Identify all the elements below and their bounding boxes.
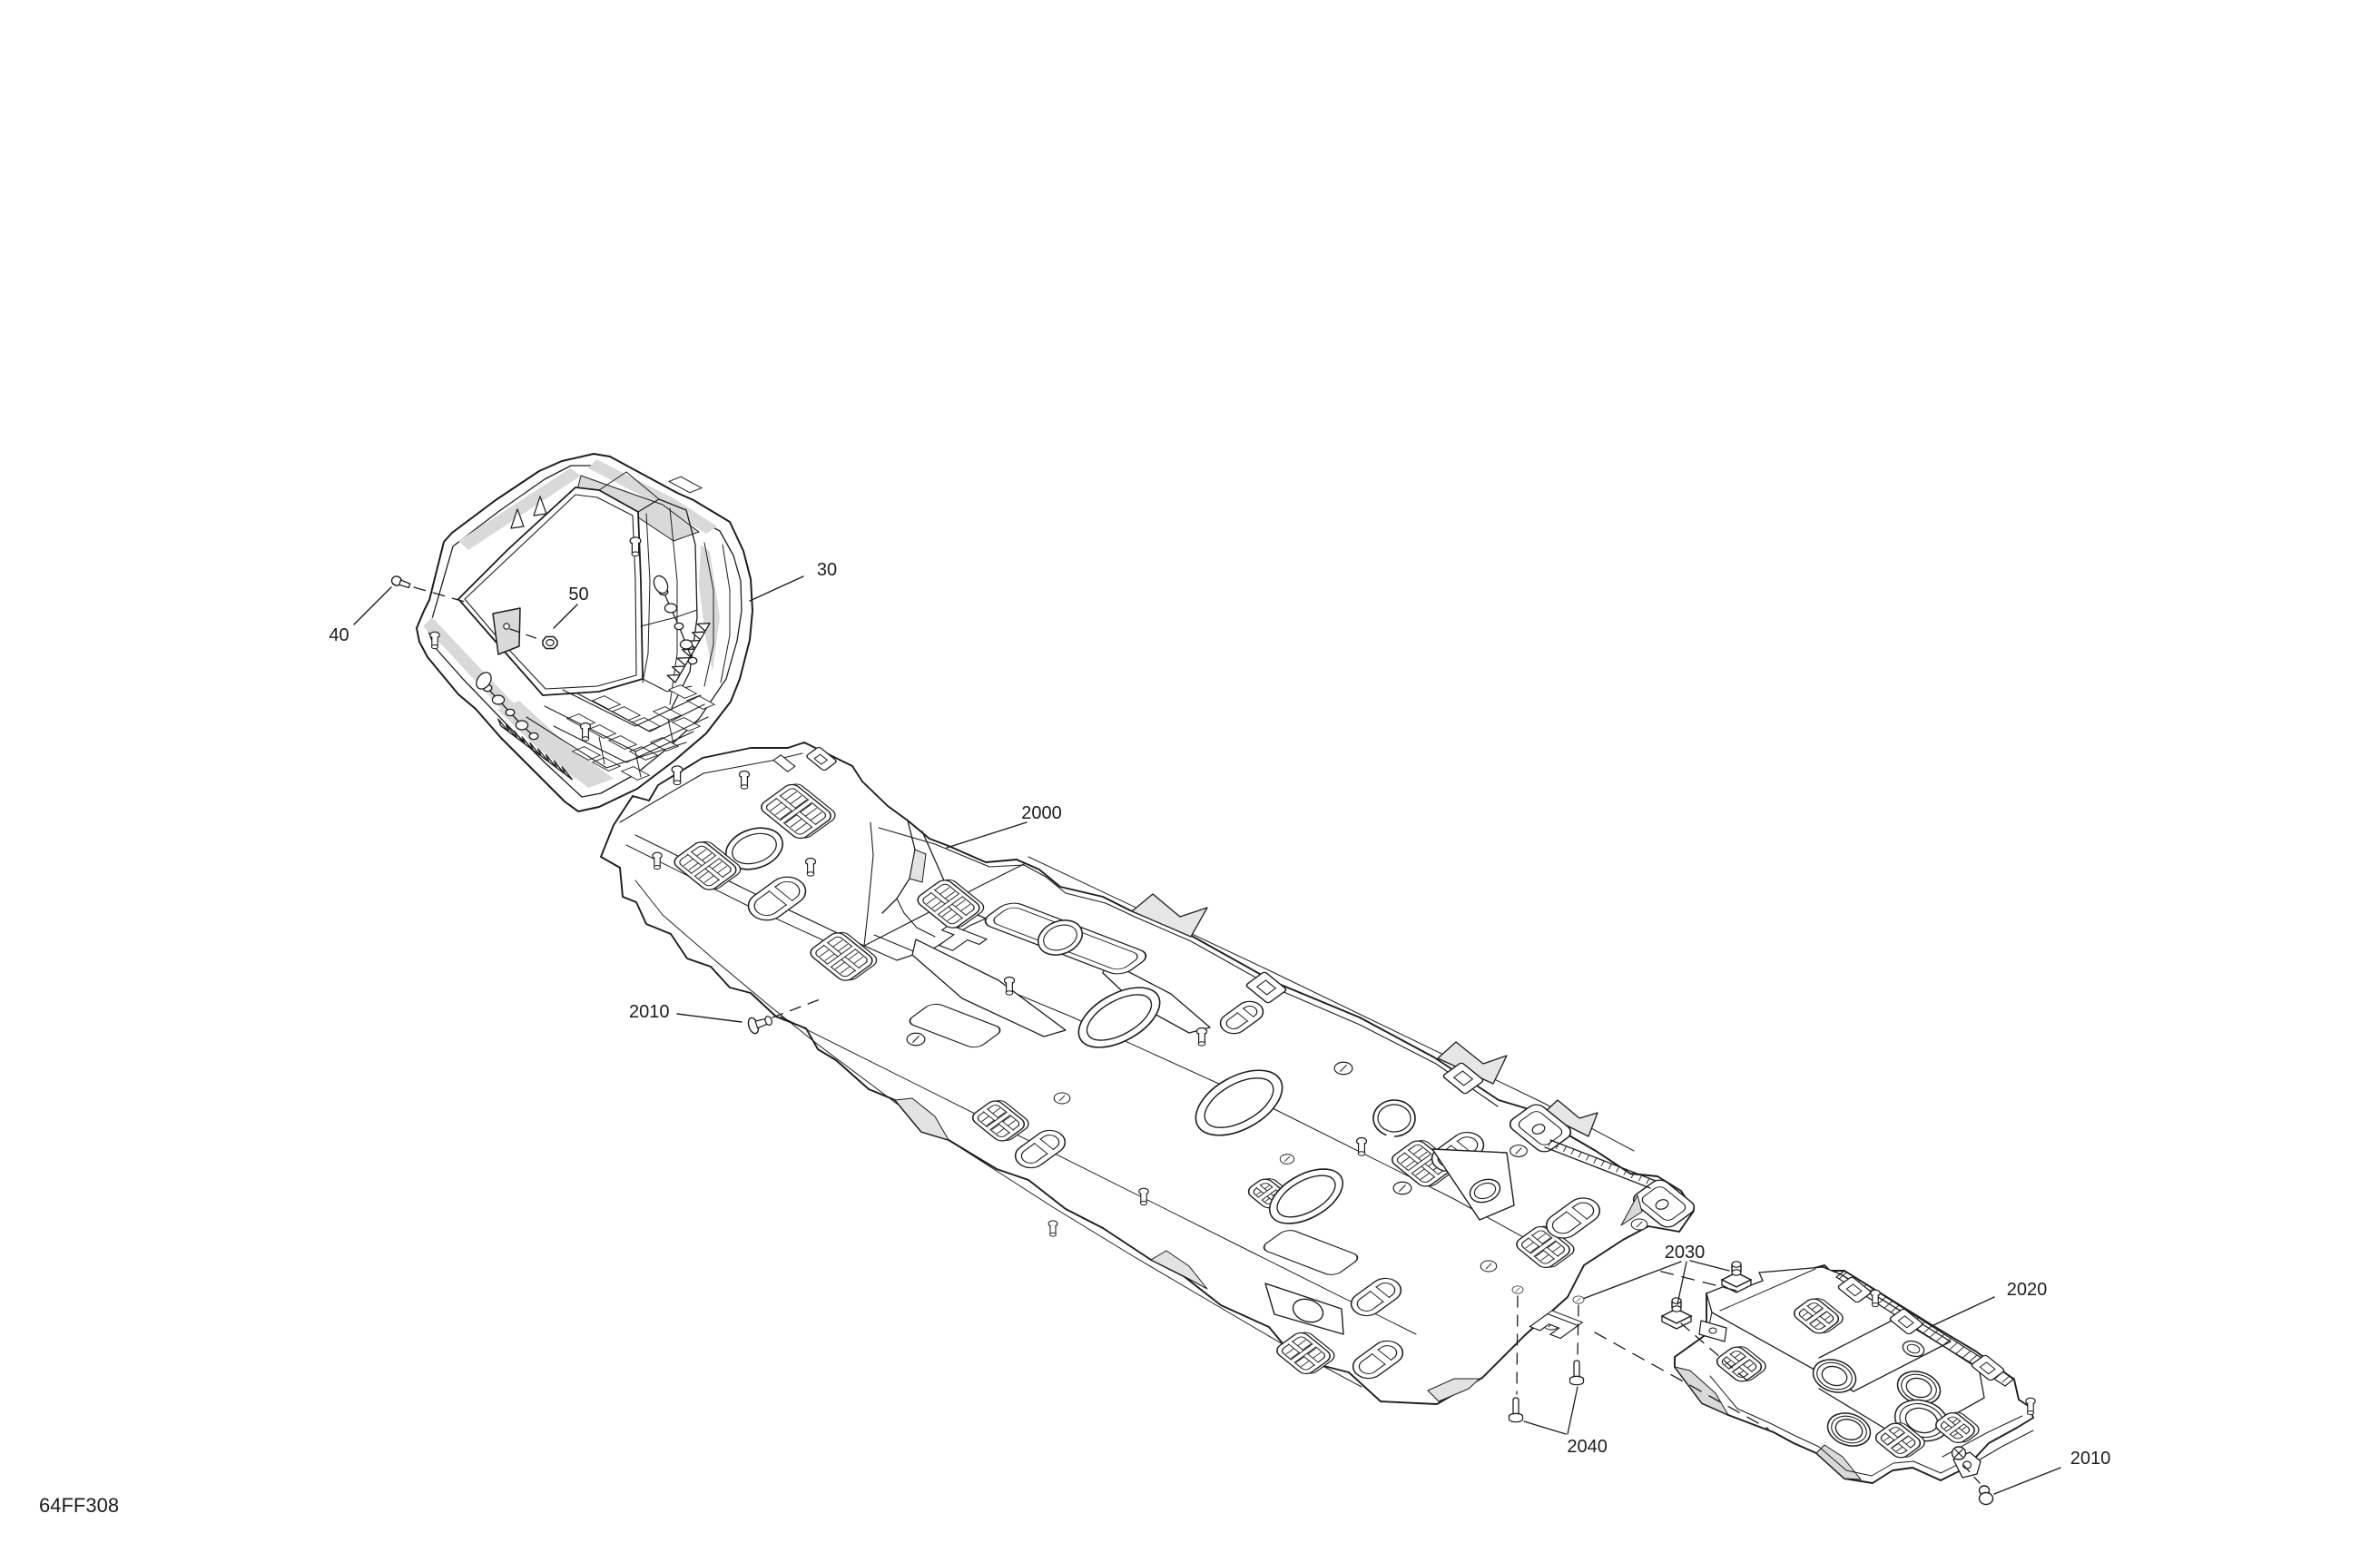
svg-text:2000: 2000 xyxy=(1021,803,1062,823)
svg-text:2020: 2020 xyxy=(2007,1280,2048,1300)
svg-text:2010: 2010 xyxy=(629,1002,670,1022)
svg-text:30: 30 xyxy=(817,560,837,580)
svg-text:50: 50 xyxy=(568,585,588,604)
svg-text:2040: 2040 xyxy=(1567,1437,1608,1457)
svg-text:64FF308: 64FF308 xyxy=(39,1494,119,1517)
svg-text:40: 40 xyxy=(329,625,349,645)
svg-text:2030: 2030 xyxy=(1665,1243,1706,1263)
svg-text:2010: 2010 xyxy=(2070,1449,2111,1469)
